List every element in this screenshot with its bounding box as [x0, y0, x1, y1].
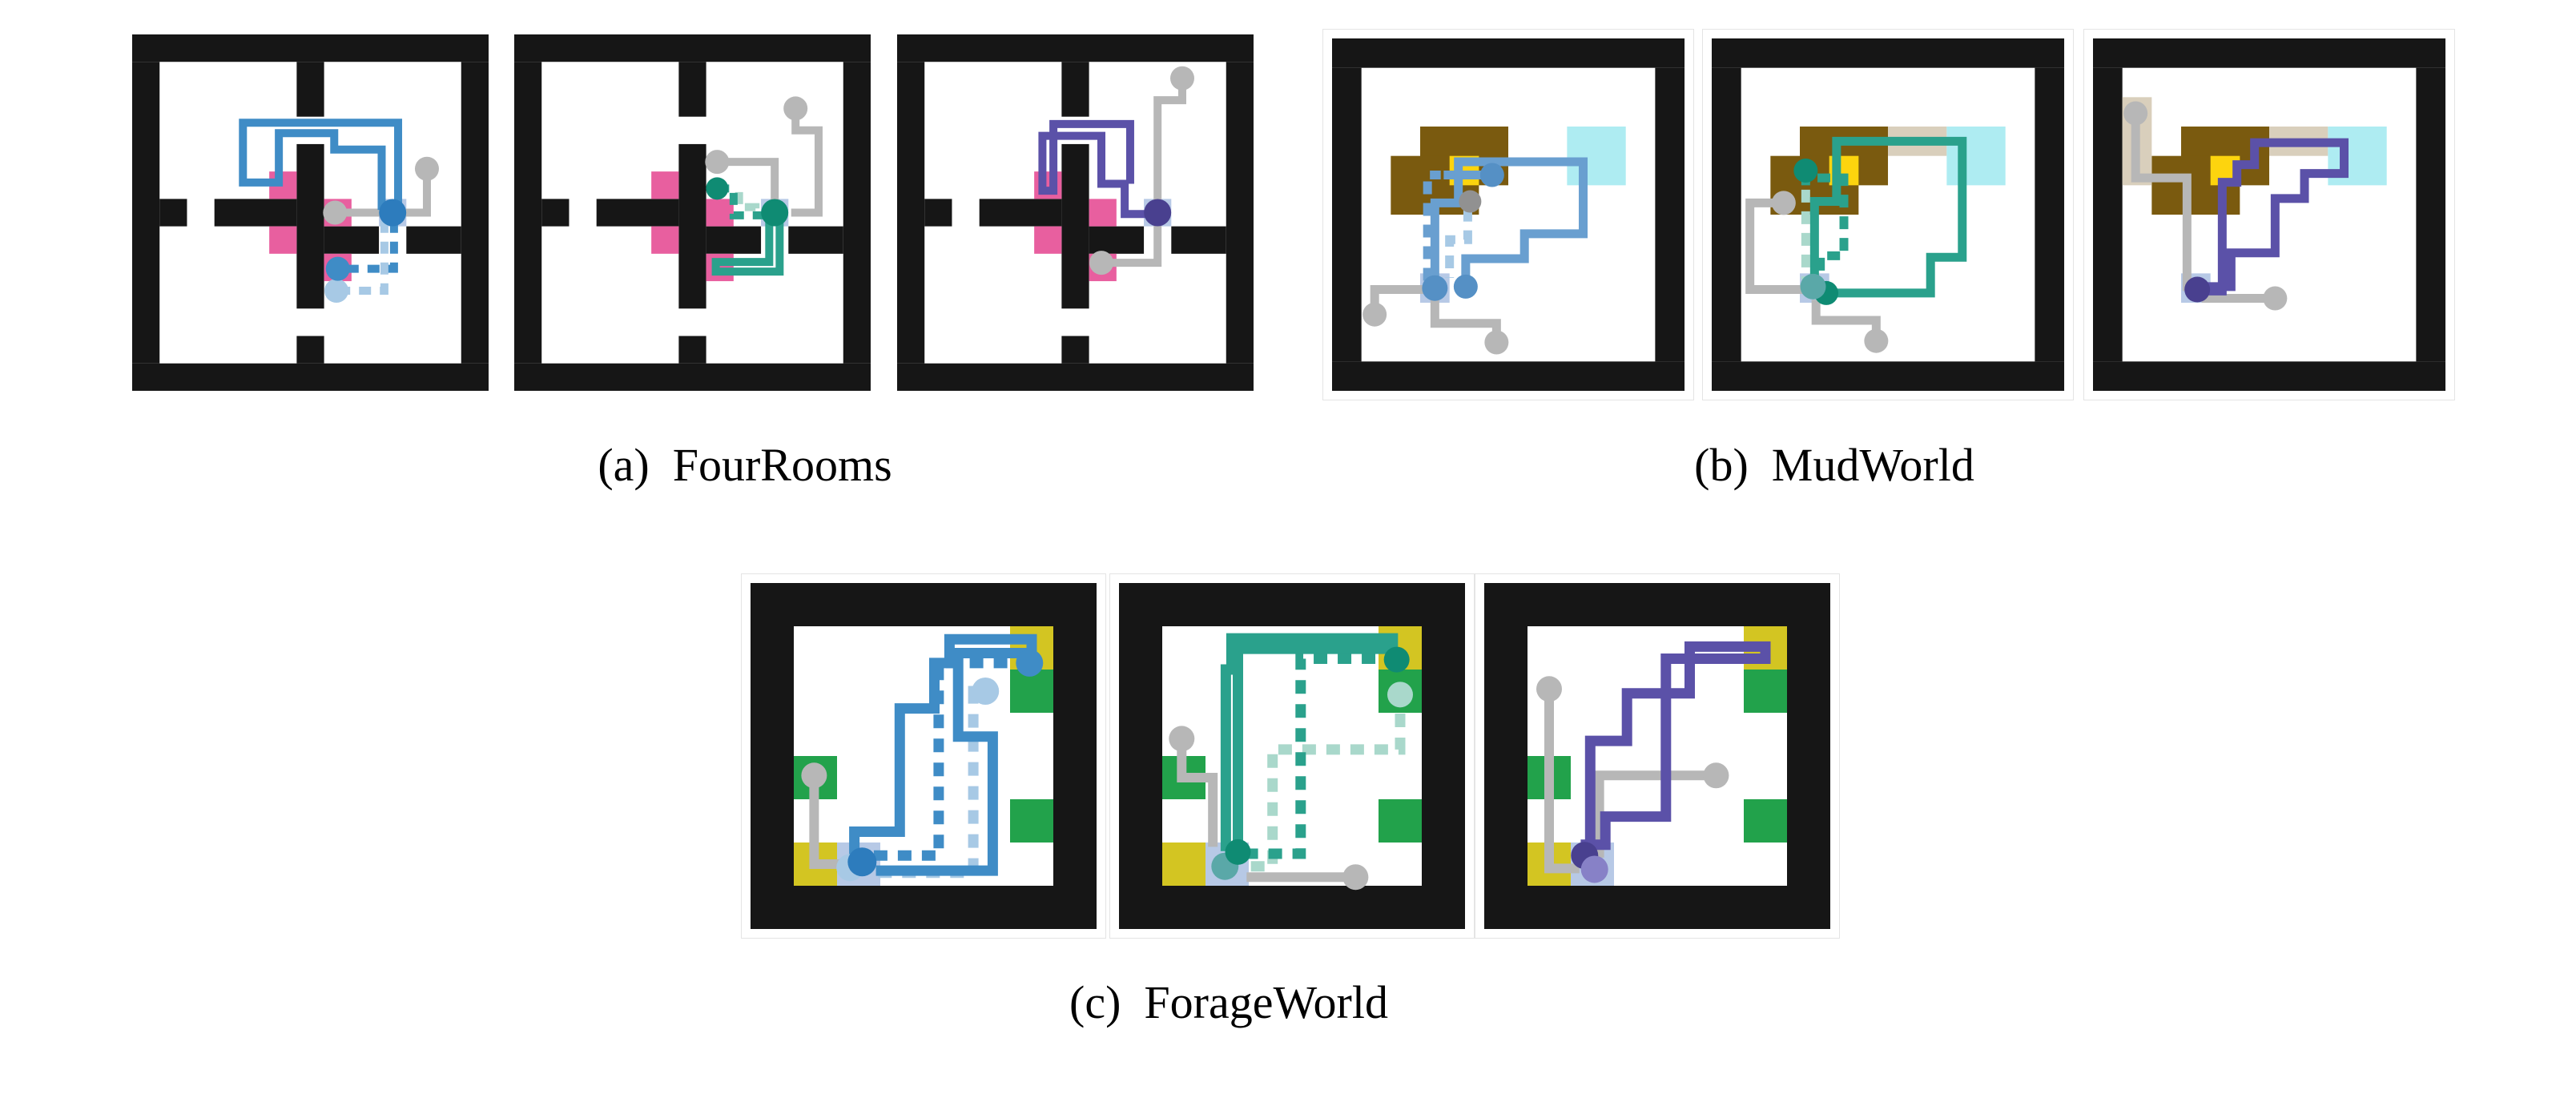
trajectory-endpoint-dot	[323, 200, 347, 224]
trajectory-endpoint-dot	[1089, 251, 1113, 275]
wall-block	[843, 62, 871, 364]
wall-block	[296, 336, 324, 364]
panel-forageworld-1	[741, 573, 1106, 939]
trajectory-endpoint-dot	[1342, 864, 1368, 890]
wall-block	[1119, 626, 1162, 886]
panel-fourrooms-1	[132, 34, 489, 391]
trajectory-endpoint-dot	[801, 762, 827, 788]
wall-block	[1332, 38, 1684, 68]
terrain-pink	[651, 171, 678, 199]
wall-block	[132, 62, 159, 364]
wall-block	[406, 227, 461, 254]
trajectory-endpoint-dot	[1144, 199, 1171, 226]
trajectory-endpoint-dot	[2184, 277, 2210, 303]
trajectory-endpoint-dot	[1772, 191, 1796, 215]
wall-block	[1712, 38, 2064, 68]
wall-block	[2093, 361, 2445, 391]
trajectory-endpoint-dot	[326, 257, 350, 281]
figure-canvas: (a) FourRooms (b) MudWorld (c) ForageWor…	[0, 0, 2576, 1118]
trajectory-endpoint-dot	[324, 279, 348, 303]
wall-block	[897, 34, 1254, 62]
wall-block	[514, 34, 871, 62]
trajectory-endpoint-dot	[1384, 647, 1410, 673]
terrain-green	[1379, 799, 1422, 843]
wall-block	[215, 199, 297, 226]
trajectory-endpoint-dot	[1581, 855, 1608, 883]
caption-fourrooms: (a) FourRooms	[598, 438, 892, 492]
trajectory-endpoint-dot	[1703, 762, 1729, 788]
wall-block	[132, 364, 489, 391]
wall-block	[751, 626, 794, 886]
grid-fourrooms-3	[897, 34, 1254, 391]
terrain-green	[1744, 799, 1787, 843]
panel-mudworld-1	[1322, 29, 1694, 400]
trajectory-endpoint-dot	[1387, 682, 1413, 707]
wall-block	[751, 886, 1097, 929]
trajectory-endpoint-dot	[1459, 191, 1481, 213]
trajectory-endpoint-dot	[705, 150, 729, 174]
wall-block	[541, 199, 569, 226]
wall-block	[1226, 62, 1254, 364]
wall-block	[461, 62, 489, 364]
trajectory-endpoint-dot	[972, 678, 999, 705]
grid-forageworld-3	[1484, 583, 1830, 929]
panel-mudworld-3	[2083, 29, 2455, 400]
wall-block	[132, 34, 489, 62]
trajectory-endpoint-dot	[706, 177, 728, 199]
wall-block	[1655, 68, 1684, 362]
wall-block	[1119, 583, 1465, 626]
terrain-green	[1010, 799, 1053, 843]
wall-block	[159, 199, 187, 226]
wall-block	[1422, 626, 1465, 886]
wall-block	[678, 144, 706, 308]
wall-block	[1119, 886, 1465, 929]
trajectory-endpoint-dot	[1169, 726, 1194, 751]
trajectory-endpoint-dot	[1422, 275, 1447, 301]
trajectory-endpoint-dot	[1793, 159, 1817, 183]
wall-block	[1484, 583, 1830, 626]
figure-page: (a) FourRooms (b) MudWorld (c) ForageWor…	[0, 0, 2576, 1118]
terrain-pink	[1089, 199, 1117, 226]
trajectory-endpoint-dot	[1226, 839, 1251, 865]
trajectory-endpoint-dot	[1801, 274, 1826, 300]
wall-block	[514, 364, 871, 391]
terrain-pink	[706, 199, 734, 226]
wall-block	[788, 227, 843, 254]
wall-block	[980, 199, 1062, 226]
wall-block	[706, 227, 761, 254]
grid-forageworld-1	[751, 583, 1097, 929]
grid-mudworld-2	[1712, 38, 2064, 391]
wall-block	[1061, 336, 1089, 364]
terrain-pink	[1034, 171, 1061, 199]
grid-fourrooms-1	[132, 34, 489, 391]
wall-block	[751, 583, 1097, 626]
trajectory-endpoint-dot	[2123, 102, 2147, 126]
wall-block	[514, 62, 541, 364]
caption-mudworld: (b) MudWorld	[1694, 438, 1974, 492]
panel-forageworld-2	[1109, 573, 1475, 939]
wall-block	[1089, 227, 1144, 254]
terrain-pink	[269, 227, 296, 254]
wall-block	[1061, 144, 1089, 308]
terrain-pink	[706, 254, 734, 281]
wall-block	[1171, 227, 1226, 254]
wall-block	[296, 62, 324, 116]
grid-forageworld-2	[1119, 583, 1465, 929]
terrain-pink	[651, 227, 678, 254]
wall-block	[296, 144, 324, 308]
trajectory-endpoint-dot	[847, 847, 876, 876]
trajectory-endpoint-dot	[1016, 649, 1043, 677]
terrain-fw_yellow	[1162, 843, 1205, 886]
terrain-cyan	[1567, 127, 1625, 185]
trajectory-endpoint-dot	[1454, 275, 1478, 299]
panel-mudworld-2	[1702, 29, 2074, 400]
trajectory-endpoint-dot	[1480, 163, 1504, 187]
wall-block	[1712, 68, 1741, 362]
wall-block	[2093, 68, 2123, 362]
caption-forageworld: (c) ForageWorld	[1069, 975, 1388, 1029]
trajectory-endpoint-dot	[1484, 331, 1508, 355]
wall-block	[678, 62, 706, 116]
wall-block	[2416, 68, 2445, 362]
terrain-cyan	[1946, 127, 2005, 185]
room-floor	[1712, 38, 2064, 391]
wall-block	[2035, 68, 2064, 362]
grid-fourrooms-2	[514, 34, 871, 391]
wall-block	[597, 199, 679, 226]
wall-block	[1053, 626, 1097, 886]
wall-block	[897, 62, 924, 364]
trajectory-endpoint-dot	[2263, 287, 2287, 311]
terrain-pink	[1034, 227, 1061, 254]
trajectory-endpoint-dot	[783, 96, 807, 120]
panel-forageworld-3	[1475, 573, 1840, 939]
trajectory-endpoint-dot	[1864, 329, 1888, 353]
wall-block	[678, 336, 706, 364]
wall-block	[1484, 626, 1527, 886]
room-floor	[2093, 38, 2445, 391]
wall-block	[1061, 62, 1089, 116]
wall-block	[2093, 38, 2445, 68]
wall-block	[1787, 626, 1830, 886]
trajectory-endpoint-dot	[415, 157, 439, 181]
trajectory-endpoint-dot	[1170, 66, 1194, 90]
room-floor	[1332, 38, 1684, 391]
trajectory-endpoint-dot	[379, 199, 406, 226]
grid-mudworld-3	[2093, 38, 2445, 391]
wall-block	[924, 199, 952, 226]
panel-fourrooms-2	[514, 34, 871, 391]
trajectory-endpoint-dot	[761, 199, 788, 226]
terrain-green	[1744, 670, 1787, 713]
wall-block	[1332, 361, 1684, 391]
wall-block	[1712, 361, 2064, 391]
trajectory-endpoint-dot	[1362, 303, 1387, 327]
trajectory-endpoint-dot	[1536, 676, 1562, 702]
wall-block	[1332, 68, 1362, 362]
grid-mudworld-1	[1332, 38, 1684, 391]
wall-block	[1484, 886, 1830, 929]
wall-block	[324, 227, 379, 254]
panel-fourrooms-3	[897, 34, 1254, 391]
wall-block	[897, 364, 1254, 391]
